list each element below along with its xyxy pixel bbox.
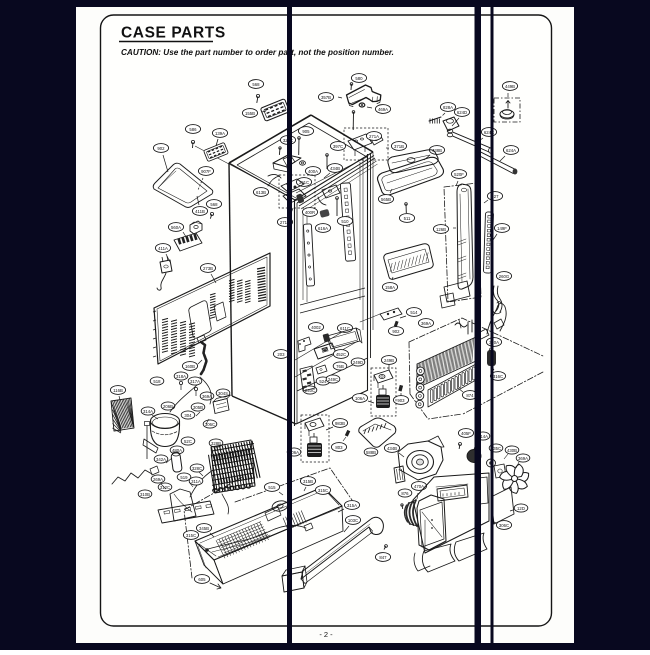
svg-text:902: 902 [392, 329, 400, 334]
svg-text:449B: 449B [505, 84, 515, 89]
svg-text:616A: 616A [318, 226, 328, 231]
svg-text:328C: 328C [192, 466, 202, 471]
svg-text:560A: 560A [171, 225, 181, 230]
svg-text:139A: 139A [215, 131, 225, 136]
svg-text:902: 902 [157, 146, 165, 151]
svg-text:312C: 312C [160, 485, 170, 490]
svg-text:315C: 315C [318, 488, 328, 493]
svg-text:405F: 405F [461, 431, 471, 436]
svg-text:- 2 -: - 2 - [319, 630, 333, 639]
svg-text:310B: 310B [140, 492, 150, 497]
svg-text:847: 847 [379, 555, 387, 560]
svg-text:434B: 434B [387, 446, 397, 451]
svg-text:160B: 160B [185, 364, 195, 369]
svg-text:316C: 316C [493, 374, 503, 379]
svg-text:315A: 315A [347, 503, 357, 508]
svg-text:514: 514 [410, 310, 418, 315]
svg-text:400R: 400R [305, 210, 315, 215]
svg-text:983B: 983B [335, 421, 345, 426]
svg-text:357B: 357B [321, 95, 331, 100]
svg-text:149F: 149F [497, 226, 507, 231]
svg-text:345B: 345B [199, 526, 209, 531]
svg-text:12D: 12D [517, 506, 525, 511]
svg-text:907F: 907F [201, 169, 211, 174]
svg-text:249D: 249D [353, 360, 363, 365]
svg-text:469A: 469A [378, 107, 388, 112]
svg-text:4002: 4002 [311, 325, 321, 330]
svg-text:CASE PARTS: CASE PARTS [121, 25, 226, 42]
svg-text:580: 580 [355, 76, 363, 81]
svg-text:568: 568 [252, 82, 260, 87]
svg-text:905: 905 [302, 129, 310, 134]
svg-text:613B: 613B [256, 190, 266, 195]
svg-text:203: 203 [277, 352, 285, 357]
svg-text:515: 515 [268, 485, 276, 490]
svg-text:342A: 342A [156, 457, 166, 462]
svg-text:304: 304 [184, 413, 192, 418]
svg-text:CAUTION: Use the part number t: CAUTION: Use the part number to order pa… [121, 48, 394, 57]
svg-text:511: 511 [404, 216, 411, 221]
svg-text:52C: 52C [184, 439, 192, 444]
svg-text:305B: 305B [193, 405, 203, 410]
svg-text:518: 518 [153, 379, 161, 384]
svg-text:828A: 828A [443, 105, 453, 110]
svg-text:306C: 306C [499, 523, 509, 528]
svg-text:206B: 206B [163, 404, 173, 409]
svg-text:452C: 452C [336, 352, 346, 357]
svg-text:311A: 311A [191, 479, 201, 484]
svg-text:306C: 306C [205, 422, 215, 427]
svg-text:103C: 103C [348, 518, 358, 523]
svg-text:876: 876 [401, 491, 409, 496]
svg-text:588B: 588B [366, 450, 376, 455]
svg-text:155B: 155B [245, 111, 255, 116]
svg-text:76B: 76B [336, 364, 344, 369]
svg-text:116B: 116B [113, 388, 123, 393]
svg-text:304S: 304S [218, 391, 228, 396]
svg-text:430B: 430B [507, 448, 517, 453]
svg-text:519: 519 [180, 475, 188, 480]
svg-text:586: 586 [189, 127, 197, 132]
svg-text:369A: 369A [421, 321, 431, 326]
svg-text:269A: 269A [153, 477, 163, 482]
svg-text:411A: 411A [158, 246, 168, 251]
svg-text:271A: 271A [369, 134, 379, 139]
svg-text:249C: 249C [328, 377, 338, 382]
svg-text:106A: 106A [355, 396, 365, 401]
svg-text:158A: 158A [385, 285, 395, 290]
svg-text:315C: 315C [186, 533, 196, 538]
svg-text:314A: 314A [143, 409, 153, 414]
svg-text:371B: 371B [394, 144, 404, 149]
svg-text:260G: 260G [499, 274, 510, 279]
svg-text:273B: 273B [203, 266, 213, 271]
svg-text:369A: 369A [518, 456, 528, 461]
svg-text:803: 803 [335, 445, 343, 450]
svg-text:605: 605 [198, 577, 206, 582]
svg-text:369A: 369A [202, 394, 212, 399]
svg-text:397C: 397C [333, 144, 343, 149]
svg-text:470A: 470A [414, 484, 424, 489]
svg-text:510: 510 [341, 219, 349, 224]
svg-text:624A: 624A [506, 148, 516, 153]
svg-text:903: 903 [397, 398, 405, 403]
svg-text:315B: 315B [303, 479, 313, 484]
svg-text:568: 568 [210, 202, 218, 207]
svg-text:411B: 411B [195, 209, 205, 214]
svg-text:624D: 624D [457, 110, 467, 115]
svg-text:317A: 317A [190, 379, 200, 384]
svg-text:318A: 318A [176, 374, 186, 379]
svg-text:874: 874 [466, 393, 474, 398]
svg-text:249B: 249B [384, 358, 394, 363]
svg-text:434B: 434B [330, 166, 340, 171]
svg-text:126B: 126B [436, 227, 446, 232]
svg-text:565B: 565B [381, 197, 391, 202]
svg-text:400A: 400A [308, 169, 318, 174]
svg-text:520F: 520F [454, 172, 464, 177]
